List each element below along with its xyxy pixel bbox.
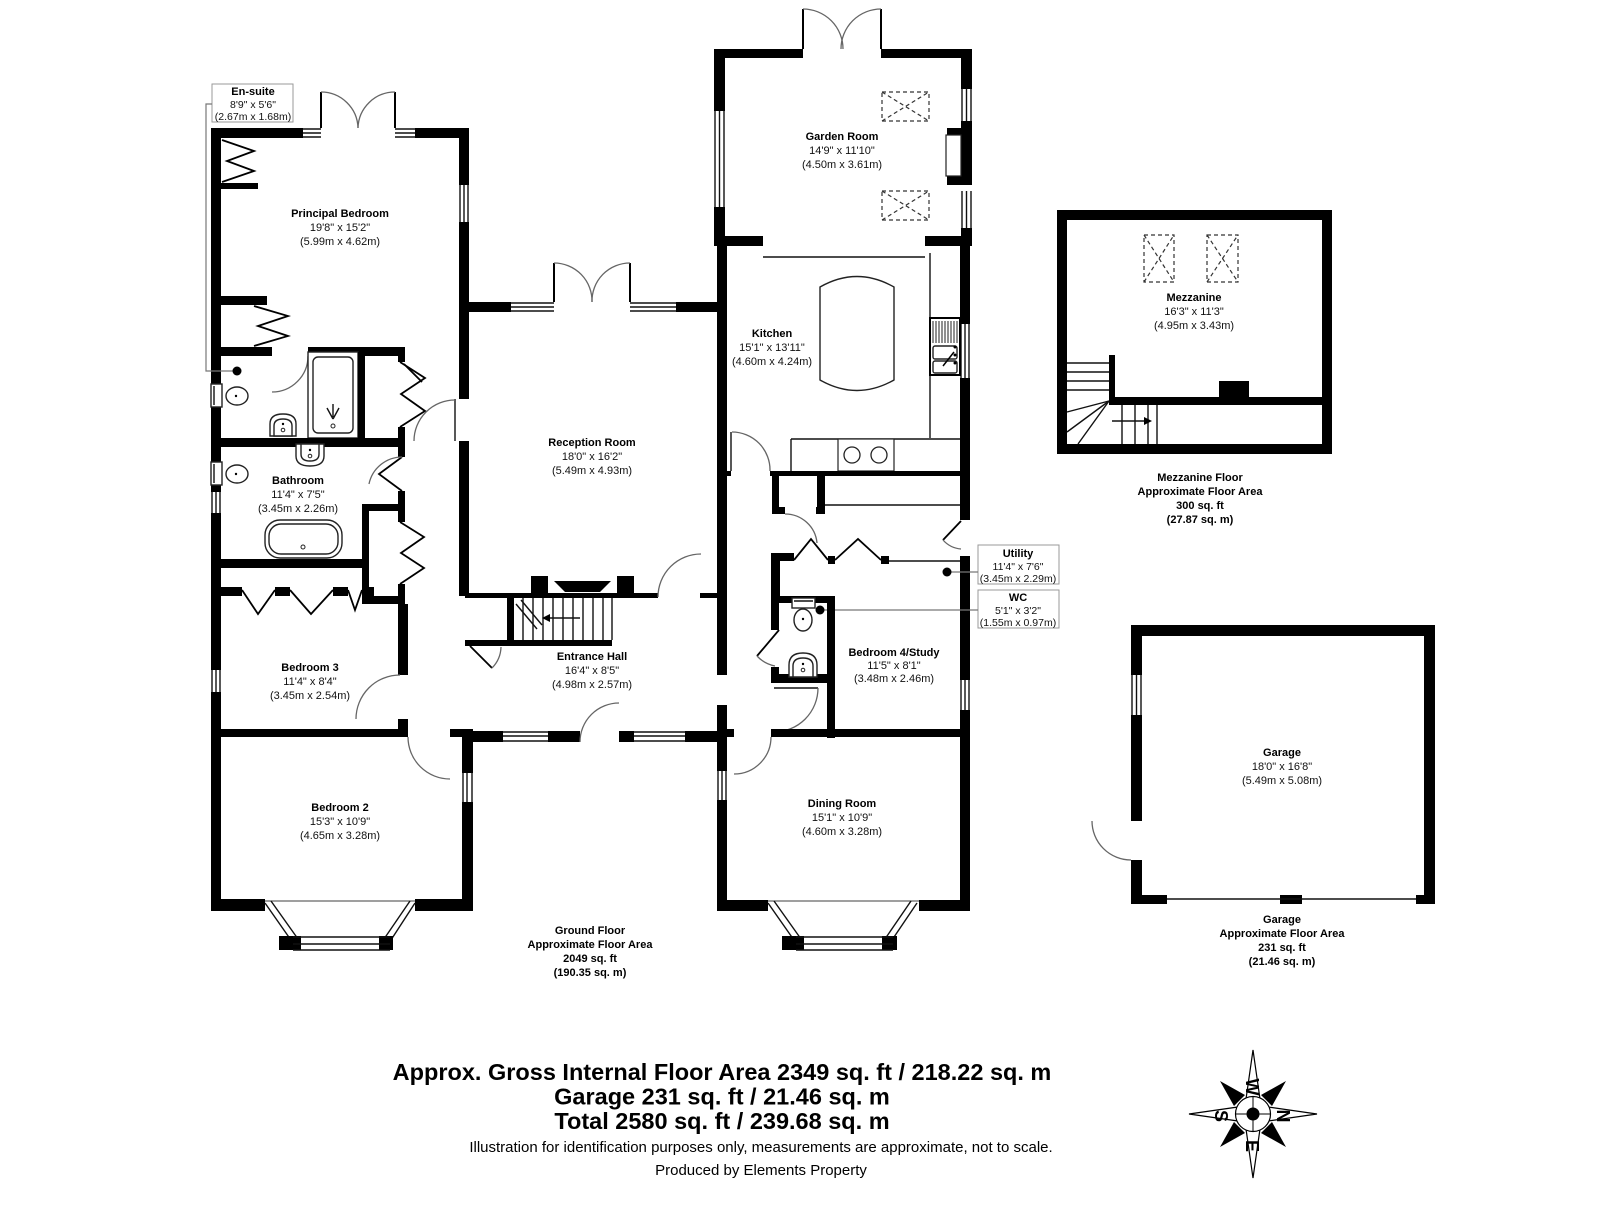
svg-text:Dining Room: Dining Room xyxy=(808,798,877,810)
svg-text:E: E xyxy=(1242,1140,1262,1152)
svg-text:5'1" x 3'2": 5'1" x 3'2" xyxy=(995,605,1041,617)
svg-text:N: N xyxy=(1273,1110,1293,1123)
svg-text:Illustration for identificatio: Illustration for identification purposes… xyxy=(469,1139,1052,1156)
svg-text:Bathroom: Bathroom xyxy=(272,475,324,487)
svg-text:(4.60m x 4.24m): (4.60m x 4.24m) xyxy=(732,356,812,368)
svg-text:Ground Floor: Ground Floor xyxy=(555,925,626,937)
svg-text:Produced by Elements Property: Produced by Elements Property xyxy=(655,1162,867,1179)
svg-text:En-suite: En-suite xyxy=(231,86,274,98)
svg-text:19'8" x 15'2": 19'8" x 15'2" xyxy=(310,222,370,234)
svg-text:Approximate Floor Area: Approximate Floor Area xyxy=(1220,928,1346,940)
svg-text:Bedroom 4/Study: Bedroom 4/Study xyxy=(848,647,940,659)
svg-text:14'9" x 11'10": 14'9" x 11'10" xyxy=(809,145,875,157)
svg-text:(1.55m x 0.97m): (1.55m x 0.97m) xyxy=(980,617,1056,629)
svg-text:Total 2580 sq. ft / 239.68 sq.: Total 2580 sq. ft / 239.68 sq. m xyxy=(554,1108,889,1134)
svg-text:(190.35 sq. m): (190.35 sq. m) xyxy=(554,967,627,979)
svg-text:Mezzanine Floor: Mezzanine Floor xyxy=(1157,472,1243,484)
svg-text:Reception Room: Reception Room xyxy=(548,437,636,449)
svg-text:(3.48m x 2.46m): (3.48m x 2.46m) xyxy=(854,673,934,685)
svg-text:(3.45m x 2.26m): (3.45m x 2.26m) xyxy=(258,503,338,515)
svg-text:16'3" x 11'3": 16'3" x 11'3" xyxy=(1164,306,1224,318)
svg-text:(4.98m x 2.57m): (4.98m x 2.57m) xyxy=(552,679,632,691)
svg-text:2049 sq. ft: 2049 sq. ft xyxy=(563,953,617,965)
svg-text:(2.67m x 1.68m): (2.67m x 1.68m) xyxy=(215,111,291,123)
svg-text:(4.50m x 3.61m): (4.50m x 3.61m) xyxy=(802,159,882,171)
svg-text:15'1" x 13'11": 15'1" x 13'11" xyxy=(739,342,805,354)
svg-text:11'4" x 7'5": 11'4" x 7'5" xyxy=(271,489,324,501)
svg-text:Garden Room: Garden Room xyxy=(806,131,879,143)
svg-text:(4.60m x 3.28m): (4.60m x 3.28m) xyxy=(802,826,882,838)
svg-text:Bedroom 3: Bedroom 3 xyxy=(281,662,338,674)
svg-text:Approximate Floor Area: Approximate Floor Area xyxy=(1138,486,1264,498)
svg-text:(3.45m x 2.29m): (3.45m x 2.29m) xyxy=(980,573,1056,585)
svg-text:Entrance Hall: Entrance Hall xyxy=(557,651,627,663)
svg-text:Bedroom 2: Bedroom 2 xyxy=(311,802,368,814)
svg-text:(5.49m x 5.08m): (5.49m x 5.08m) xyxy=(1242,775,1322,787)
svg-text:11'4" x 7'6": 11'4" x 7'6" xyxy=(993,561,1044,573)
svg-text:(3.45m x 2.54m): (3.45m x 2.54m) xyxy=(270,690,350,702)
svg-text:Kitchen: Kitchen xyxy=(752,328,793,340)
svg-text:300 sq. ft: 300 sq. ft xyxy=(1176,500,1224,512)
svg-text:231 sq. ft: 231 sq. ft xyxy=(1258,942,1306,954)
svg-text:(4.95m x 3.43m): (4.95m x 3.43m) xyxy=(1154,320,1234,332)
svg-text:Garage: Garage xyxy=(1263,914,1301,926)
svg-text:11'5" x 8'1": 11'5" x 8'1" xyxy=(867,660,920,672)
svg-text:Garage: Garage xyxy=(1263,747,1301,759)
svg-text:8'9" x 5'6": 8'9" x 5'6" xyxy=(230,99,276,111)
svg-text:(5.99m x 4.62m): (5.99m x 4.62m) xyxy=(300,236,380,248)
svg-text:Approximate Floor Area: Approximate Floor Area xyxy=(528,939,654,951)
svg-text:Utility: Utility xyxy=(1003,548,1034,560)
svg-text:W: W xyxy=(1242,1079,1262,1096)
svg-text:18'0" x 16'8": 18'0" x 16'8" xyxy=(1252,761,1312,773)
svg-text:15'3" x 10'9": 15'3" x 10'9" xyxy=(310,816,370,828)
svg-text:16'4" x 8'5": 16'4" x 8'5" xyxy=(565,665,619,677)
svg-text:Mezzanine: Mezzanine xyxy=(1166,292,1221,304)
svg-text:(21.46 sq. m): (21.46 sq. m) xyxy=(1249,956,1316,968)
svg-text:11'4" x 8'4": 11'4" x 8'4" xyxy=(283,676,336,688)
svg-text:(4.65m x 3.28m): (4.65m x 3.28m) xyxy=(300,830,380,842)
svg-text:(5.49m x 4.93m): (5.49m x 4.93m) xyxy=(552,465,632,477)
svg-text:Approx. Gross Internal Floor A: Approx. Gross Internal Floor Area 2349 s… xyxy=(393,1059,1052,1085)
svg-text:18'0" x 16'2": 18'0" x 16'2" xyxy=(562,451,622,463)
svg-text:Garage 231 sq. ft / 21.46 sq.: Garage 231 sq. ft / 21.46 sq. m xyxy=(554,1084,890,1110)
svg-text:WC: WC xyxy=(1009,592,1027,604)
svg-text:15'1" x 10'9": 15'1" x 10'9" xyxy=(812,812,872,824)
svg-text:Principal Bedroom: Principal Bedroom xyxy=(291,208,389,220)
svg-text:S: S xyxy=(1211,1110,1231,1122)
svg-text:(27.87 sq. m): (27.87 sq. m) xyxy=(1167,514,1234,526)
